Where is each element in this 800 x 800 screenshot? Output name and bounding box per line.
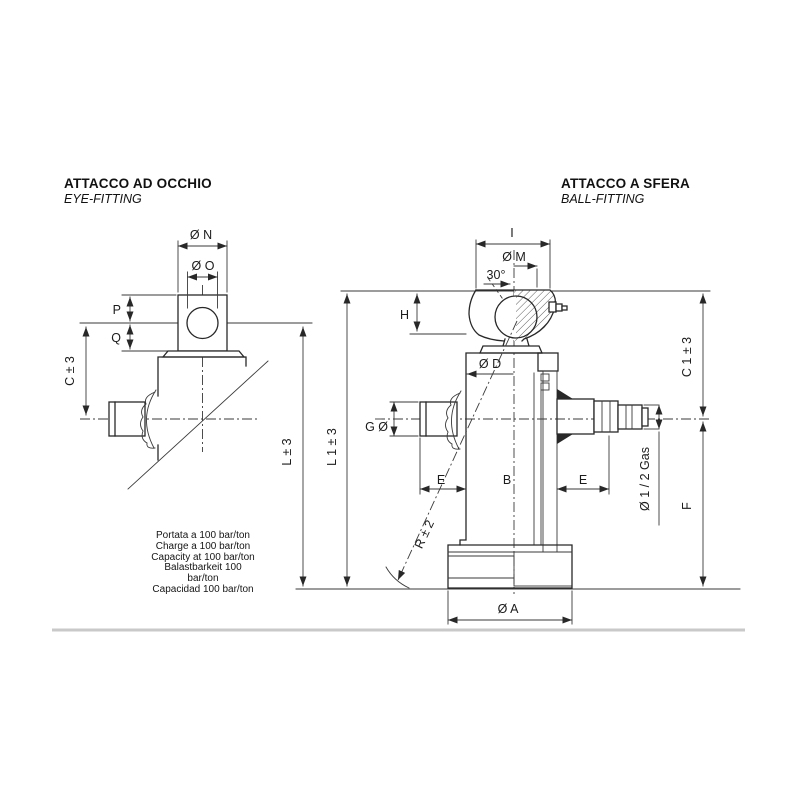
dim-label-A: Ø A [498, 602, 520, 616]
dim-label-C: C ± 3 [63, 356, 77, 386]
gland-nut-section [538, 353, 558, 371]
break-line [128, 361, 268, 489]
weld-fillet [557, 434, 573, 444]
dim-label-M: Ø M [502, 250, 526, 264]
right-port-tip [642, 408, 648, 426]
grease-nipple [549, 302, 567, 312]
right-port-barrel [557, 399, 594, 434]
seal-ring [541, 383, 549, 390]
base-outline [448, 545, 572, 588]
dim-label-H: H [400, 308, 409, 322]
dim-label-I: I [510, 226, 513, 240]
base-inner-lines [448, 552, 572, 578]
dim-label-gas: Ø 1 / 2 Gas [638, 447, 652, 511]
dim-label-F: F [680, 502, 694, 510]
eye-hole [187, 308, 218, 339]
drawing-svg: Ø N Ø O P Q C ± 3 L ± 3 [0, 0, 800, 800]
dim-label-L: L ± 3 [280, 438, 294, 465]
technical-drawing-page: ATTACCO AD OCCHIO EYE-FITTING ATTACCO A … [0, 0, 800, 800]
dim-label-D: Ø D [479, 357, 501, 371]
dim-label-E-right: E [579, 473, 587, 487]
outer-tube-wall-section [543, 371, 557, 552]
stage-tube [460, 353, 541, 545]
ball-fitting-drawing: I Ø M 30° [296, 226, 740, 624]
dim-label-R: R ± 2 [412, 518, 437, 551]
dim-label-O: Ø O [192, 259, 215, 273]
dim-label-G: G Ø [365, 420, 388, 434]
right-port-thread [618, 405, 642, 429]
base-section-hatch [514, 552, 572, 586]
dim-label-Q: Q [111, 331, 121, 345]
rod-end-flange [480, 346, 542, 353]
radius-arc [386, 567, 409, 588]
dim-label-E-left: E [437, 473, 445, 487]
weld-fillet [557, 389, 573, 399]
seal-ring [541, 374, 549, 381]
dim-label-L1: L 1 ± 3 [325, 428, 339, 466]
dim-label-P: P [113, 303, 121, 317]
right-port-hex [594, 401, 618, 432]
rod-cap [163, 351, 244, 357]
dim-label-C1: C 1 ± 3 [680, 337, 694, 377]
dim-label-N: Ø N [190, 228, 212, 242]
eye-fitting-drawing: Ø N Ø O P Q C ± 3 L ± 3 [63, 228, 312, 586]
cylinder-body [158, 357, 246, 460]
dim-label-B: B [503, 473, 511, 487]
